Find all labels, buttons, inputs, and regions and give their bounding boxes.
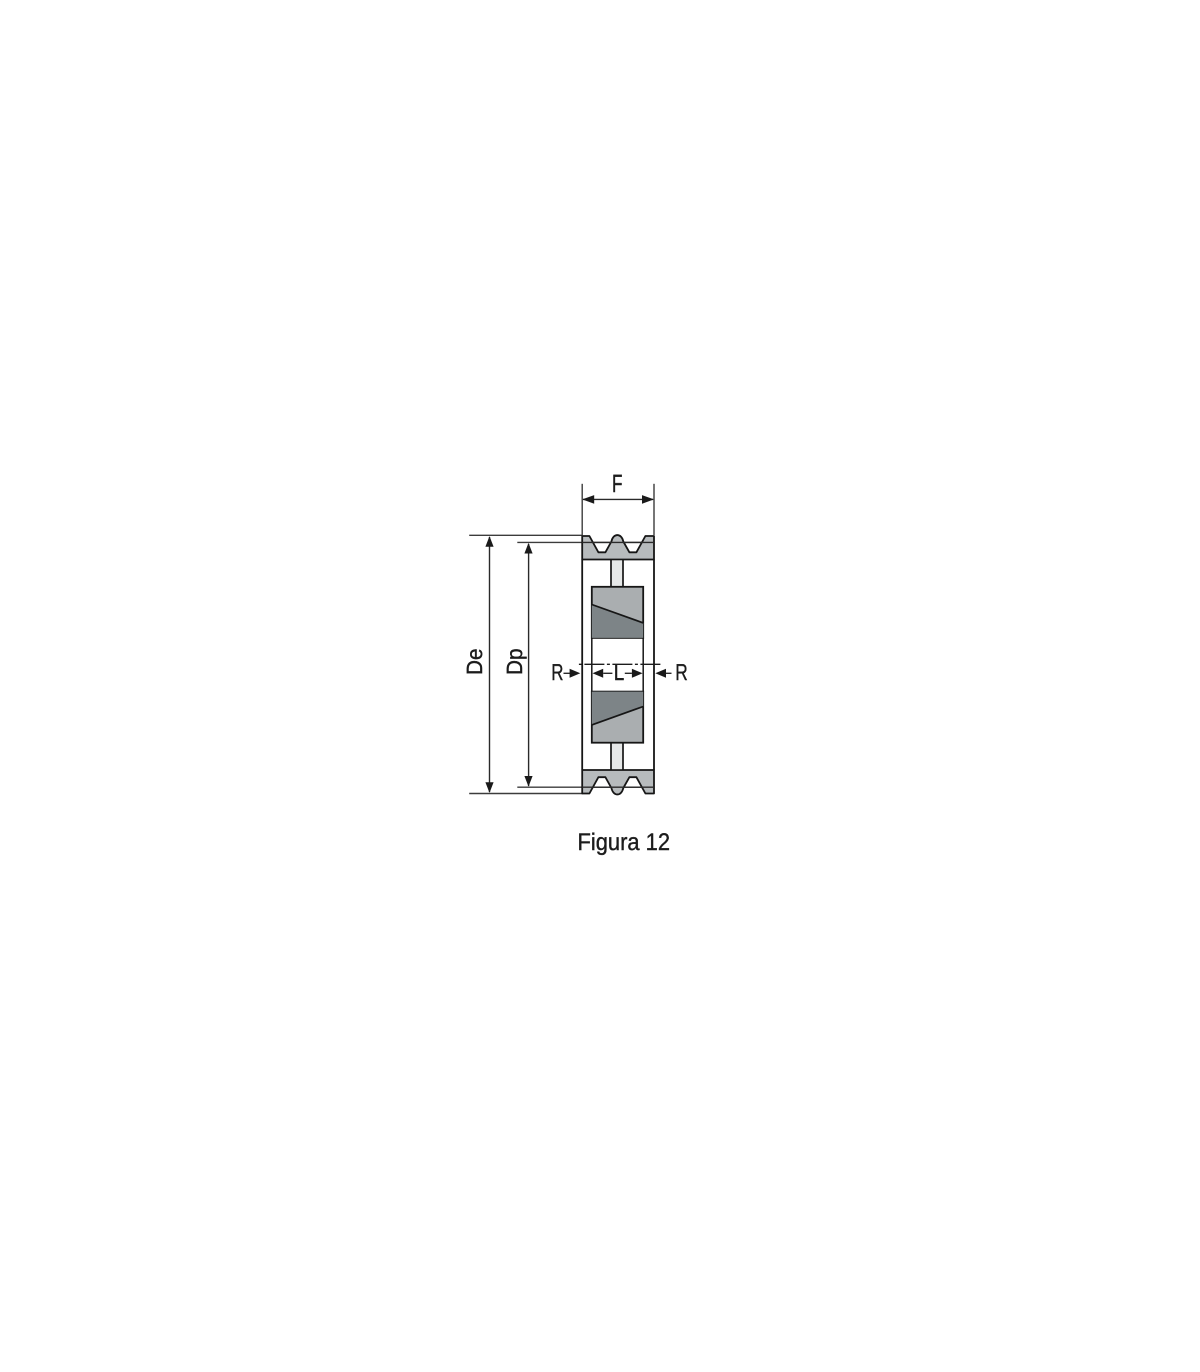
svg-text:De: De [462,649,487,676]
svg-text:L: L [614,659,625,685]
svg-text:Figura 12: Figura 12 [578,829,671,856]
svg-text:R: R [551,659,563,685]
svg-text:F: F [612,470,623,498]
svg-text:Dp: Dp [502,649,527,676]
svg-text:R: R [675,659,688,685]
